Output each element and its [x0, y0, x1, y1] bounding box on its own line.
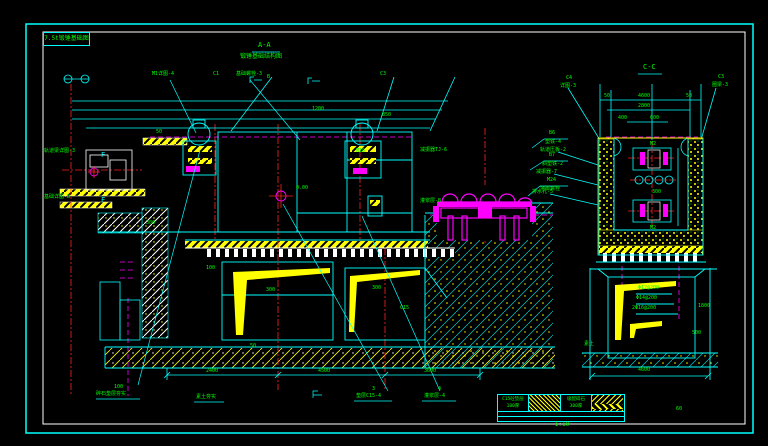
legend-hatch-sample-1 — [529, 395, 561, 411]
dim-label: 3 — [372, 387, 375, 392]
dim-label: M2 — [650, 226, 656, 231]
dim-label: 100 — [114, 385, 123, 390]
dim-label: C3 — [380, 72, 386, 77]
dim-label: 轨道压板-2 — [540, 148, 566, 153]
dim-label: 垫层C15-4 — [356, 394, 381, 399]
dim-label: C15 — [400, 306, 409, 311]
dim-label: 碎石垫层夯实 — [96, 392, 126, 397]
dim-label: 灌浆层-B — [420, 199, 441, 204]
dim-label: 600 — [650, 116, 659, 121]
dim-label: B — [267, 75, 270, 80]
dim-label: 减振器TJ-6 — [420, 148, 447, 153]
dim-label: 圈梁-3 — [712, 83, 728, 88]
main-view-title: A-A — [258, 42, 271, 49]
dim-label: 4 — [438, 387, 441, 392]
section-mark-f: F — [101, 197, 105, 204]
drawing-title-box: 7.5t锻锤基础图 — [43, 32, 90, 46]
dim-label: 素土夯实 — [196, 395, 216, 400]
legend-zigzag-sample — [592, 404, 623, 409]
legend-material-1-spec: 100厚 — [498, 404, 528, 411]
dim-label: 100 — [206, 266, 215, 271]
dim-label: 减振器-7 — [536, 170, 557, 175]
dim-label: 详图-3 — [560, 84, 576, 89]
dim-label: 50 — [604, 94, 610, 99]
dim-label: 850 — [382, 113, 391, 118]
dim-label: 斜垫铁-2 — [542, 162, 563, 167]
dim-label: 垫铁-4 — [545, 140, 561, 145]
scale-label: 1:10 — [540, 421, 584, 428]
section-mark-f: F — [101, 152, 105, 159]
main-view-subtitle: 锻锤基础结构图 — [240, 54, 282, 60]
dim-label: 4500 — [318, 369, 330, 374]
dim-label: 3600 — [424, 369, 436, 374]
dim-label: 基础螺栓-3 — [236, 72, 262, 77]
cad-drawing-canvas: M1详图-4C1基础螺栓-3BC31200850A-A锻锤基础结构图轨道梁详图-… — [0, 0, 768, 446]
dim-label: 2Φ16@200 — [632, 306, 656, 311]
legend-row: C15砼垫层 100厚 级配碎石 300厚 — [498, 395, 624, 412]
legend-material-1: C15砼垫层 100厚 — [498, 395, 529, 411]
legend-material-2-name: 级配碎石 — [561, 397, 591, 404]
side-view-title: C-C — [643, 64, 656, 71]
dim-label: M1详图-4 — [152, 72, 174, 77]
dim-label: C3 — [718, 75, 724, 80]
drawing-title-text: 7.5t锻锤基础图 — [44, 35, 88, 42]
dim-label: 4600 — [638, 368, 650, 373]
legend-material-1-name: C15砼垫层 — [498, 397, 528, 404]
dim-label: M24 — [547, 178, 556, 183]
dim-label: 300 — [652, 190, 661, 195]
legend-hatch-sample-2 — [592, 395, 623, 411]
dim-label: 1800 — [698, 304, 710, 309]
dim-label: 300 — [266, 288, 275, 293]
dim-label: M16 — [356, 149, 365, 154]
dim-label: 1200 — [312, 107, 324, 112]
dim-label: Φ12@200 — [638, 286, 659, 291]
dim-label: 素土 — [584, 342, 594, 347]
dim-label: B7 — [549, 153, 555, 158]
dim-label: 60 — [676, 407, 682, 412]
dim-label: 300 — [372, 286, 381, 291]
dim-label: 400 — [618, 116, 627, 121]
dim-label: 500 — [692, 331, 701, 336]
dim-label: M2 — [650, 142, 656, 147]
dim-label: 0.00 — [296, 186, 308, 191]
dim-label: 2400 — [206, 369, 218, 374]
labels-layer: M1详图-4C1基础螺栓-3BC31200850A-A锻锤基础结构图轨道梁详图-… — [0, 0, 768, 446]
dim-label: 50 — [156, 130, 162, 135]
dim-label: C4 — [566, 76, 572, 81]
dim-label: C1 — [213, 72, 219, 77]
dim-label: 4600 — [638, 94, 650, 99]
dim-label: Φ14@200 — [636, 296, 657, 301]
dim-label: 基础详图-B — [44, 195, 70, 200]
dim-label: 50 — [250, 344, 256, 349]
dim-label: 轨道梁详图-3 — [44, 149, 75, 154]
legend-material-2: 级配碎石 300厚 — [561, 395, 592, 411]
dim-label: B6 — [549, 131, 555, 136]
dim-label: 灌浆层-4 — [424, 394, 445, 399]
dim-label: 300 — [146, 221, 155, 226]
dim-label: 50 — [686, 94, 692, 99]
dim-label: 2800 — [638, 104, 650, 109]
dim-label: 排水孔-5 — [532, 190, 553, 195]
legend-table: C15砼垫层 100厚 级配碎石 300厚 — [497, 394, 625, 422]
legend-material-2-spec: 300厚 — [561, 404, 591, 411]
